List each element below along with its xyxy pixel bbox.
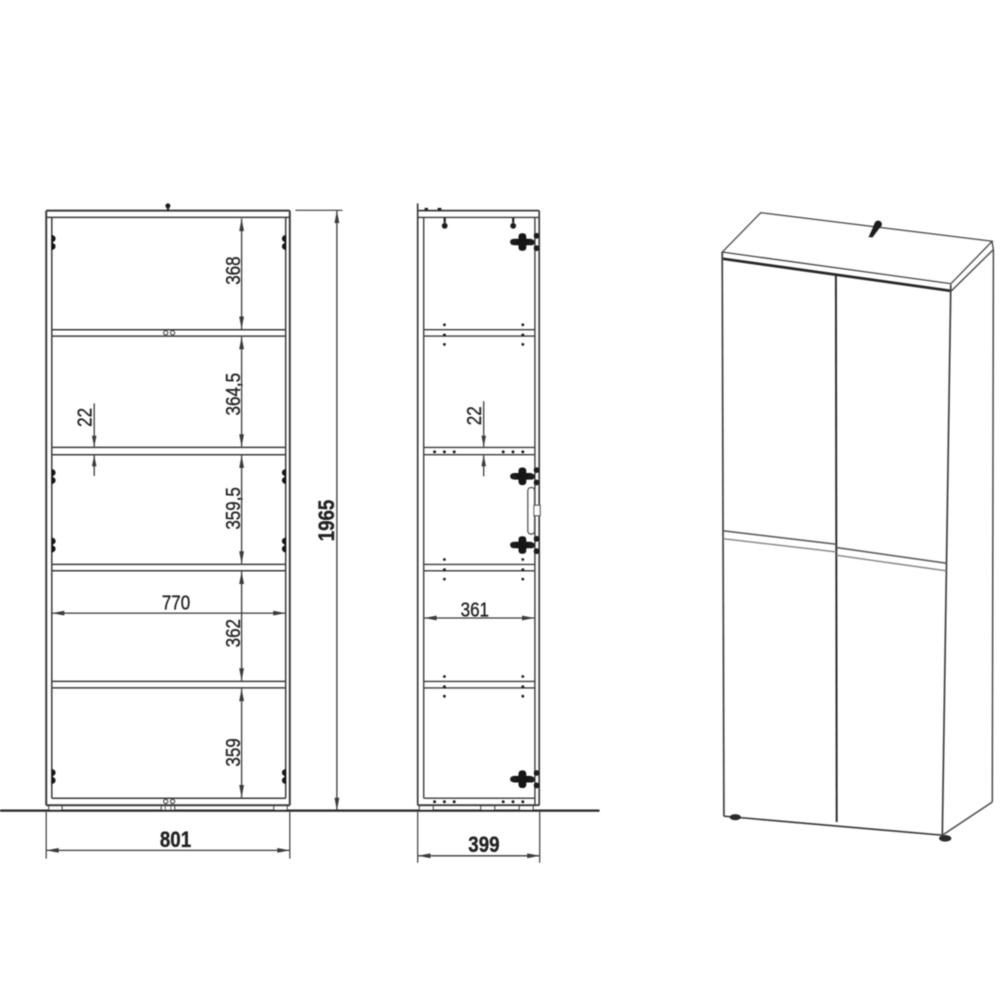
svg-text:22: 22: [462, 406, 485, 425]
svg-text:361: 361: [461, 598, 489, 621]
svg-text:770: 770: [162, 591, 190, 614]
svg-text:359: 359: [222, 738, 245, 766]
svg-text:399: 399: [468, 834, 499, 858]
svg-text:359,5: 359,5: [222, 487, 245, 530]
svg-text:801: 801: [160, 829, 191, 853]
svg-text:364,5: 364,5: [222, 373, 245, 416]
svg-text:1965: 1965: [316, 500, 340, 542]
svg-text:22: 22: [73, 408, 96, 427]
svg-text:362: 362: [222, 619, 245, 647]
svg-text:368: 368: [222, 256, 245, 284]
